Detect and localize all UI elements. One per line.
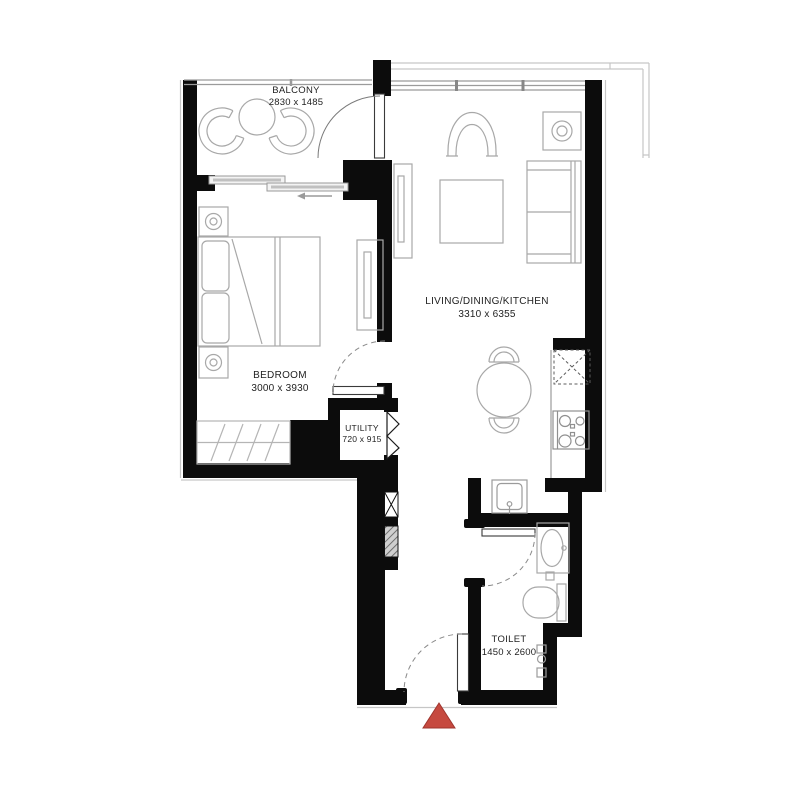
door-swing-arc (482, 533, 535, 586)
wall-right (585, 80, 602, 492)
room-name: UTILITY (342, 423, 381, 434)
double-bed (198, 237, 320, 346)
balcony-door (318, 94, 385, 158)
refrigerator-space (554, 350, 590, 384)
sofa (527, 161, 581, 263)
wall-bedroom-bottom (183, 463, 361, 478)
balcony-lounge-chair (269, 108, 314, 154)
balcony-railing (184, 80, 372, 85)
toilet-label: TOILET 1450 x 2600 (482, 634, 537, 659)
wall-closet-column (290, 420, 330, 478)
door-stop (464, 578, 485, 587)
door-stop (464, 519, 485, 528)
utility-label: UTILITY 720 x 915 (342, 423, 381, 444)
pillow (202, 293, 229, 343)
wall-balcony-column (373, 60, 391, 96)
wall-kitchen-bottom (545, 478, 602, 492)
wall-toilet-step (543, 623, 582, 637)
room-name: TOILET (482, 634, 537, 647)
wall-utility-right-top (384, 398, 398, 412)
bedroom-door (333, 341, 385, 395)
wall-left (183, 80, 197, 478)
slide-direction-arrow-icon (297, 193, 332, 200)
floor-plan-drawing (0, 0, 800, 800)
room-name: LIVING/DINING/KITCHEN (425, 295, 549, 308)
room-dims: 2830 x 1485 (269, 97, 324, 109)
balcony-label: BALCONY 2830 x 1485 (269, 85, 324, 109)
dining-chair (489, 418, 519, 433)
wall-bottom-right (461, 690, 557, 705)
bedroom-label: BEDROOM 3000 x 3930 (251, 369, 308, 395)
round-dining-table (477, 363, 531, 417)
living-label: LIVING/DINING/KITCHEN 3310 x 6355 (425, 295, 549, 321)
door-swing-arc (318, 96, 380, 158)
toilet-door (482, 529, 535, 586)
wall-hall-column (357, 478, 385, 690)
wall-utility-right-bottom (384, 455, 398, 478)
wall-utility-top (328, 398, 392, 410)
walls (183, 60, 602, 705)
room-dims: 3000 x 3930 (251, 382, 308, 395)
wall-toilet-left-lower (468, 580, 481, 690)
room-name: BEDROOM (251, 369, 308, 382)
floor-plan: BALCONY 2830 x 1485 LIVING/DINING/KITCHE… (0, 0, 800, 800)
room-dims: 3310 x 6355 (425, 308, 549, 321)
balcony-lounge-chair (199, 108, 244, 154)
nightstand-lamp (199, 207, 228, 236)
wall-toilet-right (568, 492, 582, 637)
dining-chair (489, 347, 519, 362)
stove (553, 411, 589, 449)
entrance-door (404, 634, 469, 692)
armchair (446, 113, 498, 157)
wall-kitchen-stub (553, 338, 590, 350)
nightstand-lamp (199, 347, 228, 378)
side-table-lamp (543, 112, 581, 150)
tv-unit (394, 164, 412, 258)
entrance-marker (423, 703, 455, 728)
wall-divider-right (343, 160, 392, 200)
built-in-closet (197, 421, 290, 464)
wc (523, 572, 566, 621)
room-name: BALCONY (269, 85, 324, 97)
sliding-door (209, 176, 348, 200)
wall-sink-stub (468, 478, 481, 513)
washbasin (537, 523, 569, 573)
living-window (391, 81, 585, 90)
bifold-door (387, 412, 399, 459)
door-stop (396, 688, 407, 704)
wall-bedroom-living (377, 200, 392, 342)
room-dims: 1450 x 2600 (482, 647, 537, 660)
kitchen-sink (492, 480, 527, 514)
door-swing-arc (404, 634, 462, 692)
coffee-table (440, 180, 503, 243)
room-dims: 720 x 915 (342, 434, 381, 445)
pillow (202, 241, 229, 291)
